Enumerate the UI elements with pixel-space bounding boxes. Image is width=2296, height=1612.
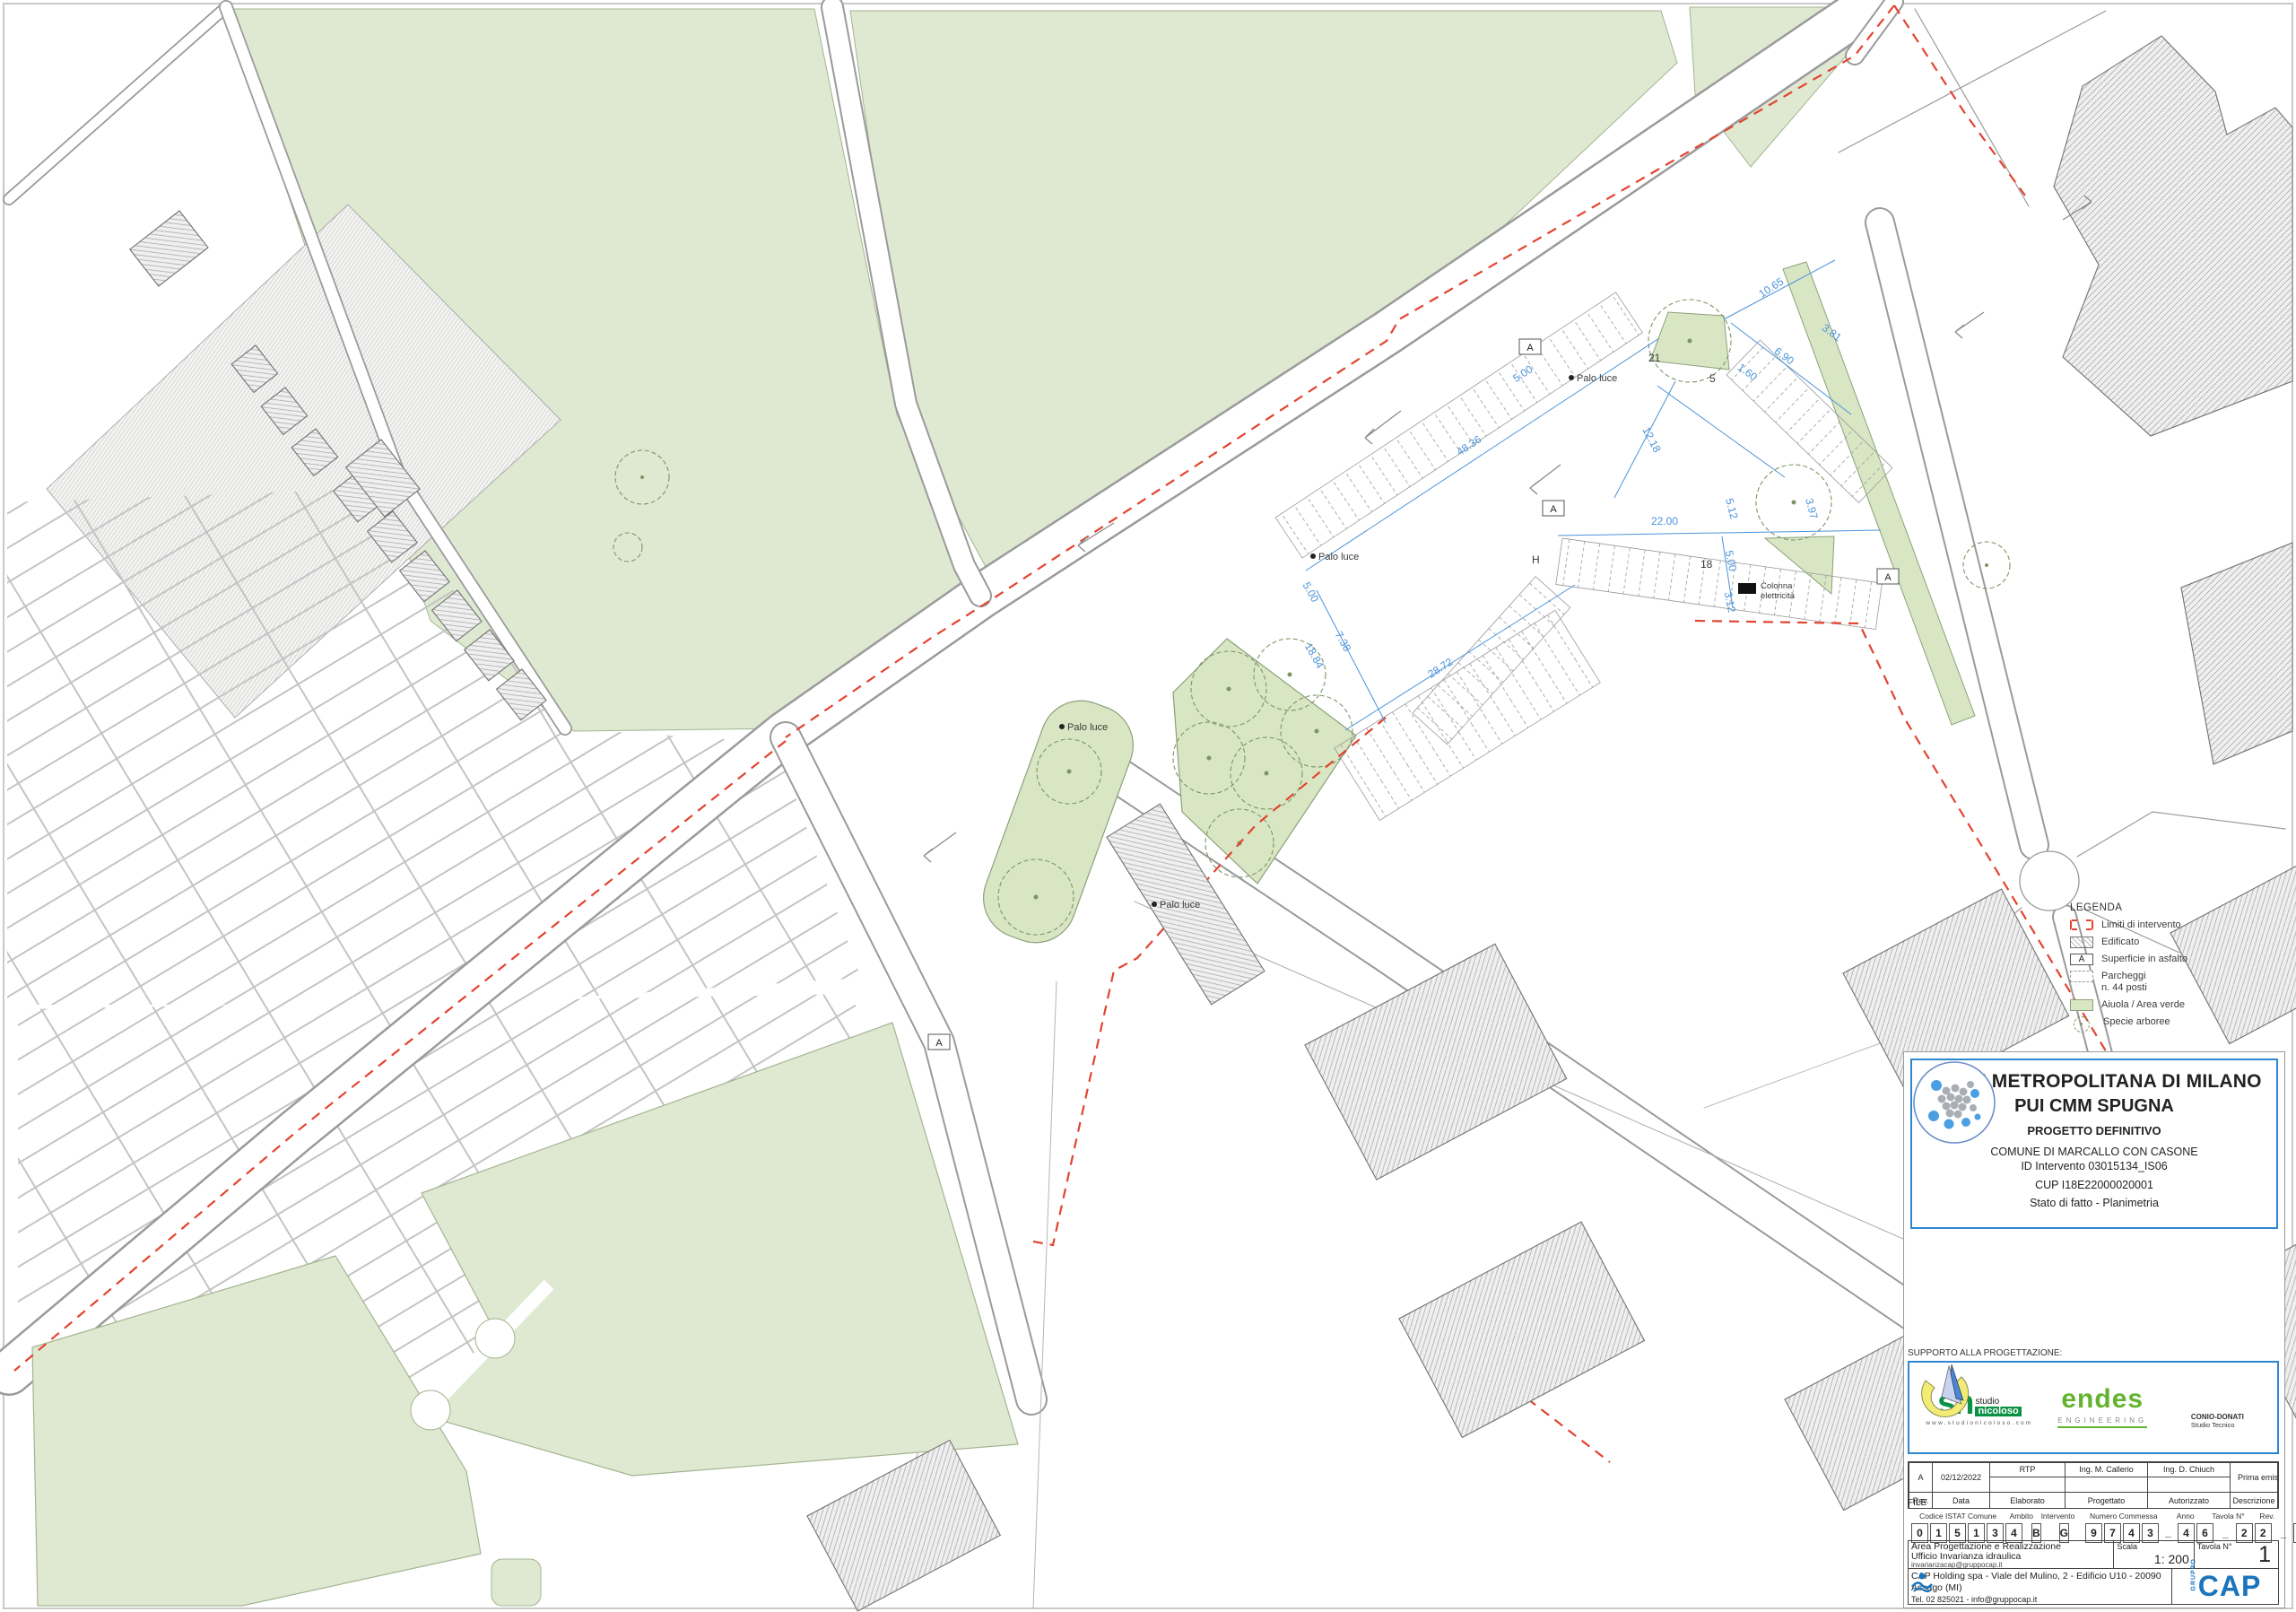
title-block-header: CITTA' METROPOLITANA DI MILANO PUI CMM S… (1910, 1059, 2278, 1229)
conio-donati-logo: CONIO-DONATI Studio Tecnico (2156, 1386, 2277, 1429)
rev-value: A (1909, 1463, 1933, 1493)
support-label: SUPPORTO ALLA PROGETTAZIONE: (1908, 1348, 2062, 1358)
file-label: FILE (1908, 1498, 1926, 1508)
h-label: H (1532, 553, 1540, 566)
scale-value: 1: 200 (2154, 1552, 2189, 1566)
sheet-number-cell: Tavola N° 1 (2195, 1541, 2278, 1568)
info-row: Area Progettazione e Realizzazione Uffic… (1908, 1540, 2279, 1569)
legend-item-edificato: Edificato (2070, 937, 2258, 948)
spugna-logo (1912, 1060, 1996, 1145)
legend: LEGENDA Limiti di intervento Edificato A… (2070, 902, 2258, 1038)
edificato-swatch (2070, 937, 2093, 948)
palo-luce-label: Palo luce (1577, 373, 1617, 384)
colonna-label: Colonna (1761, 581, 1793, 591)
stall-count-18: 18 (1700, 558, 1713, 571)
palo-luce-label: Palo luce (1318, 552, 1359, 562)
legend-item-asfalto: A Superficie in asfalto (2070, 954, 2258, 965)
svg-text:elettricità: elettricità (1761, 591, 1796, 601)
rev-date: 02/12/2022 (1933, 1463, 1990, 1493)
svg-text:A: A (1884, 572, 1892, 583)
company-row: CAP Holding spa - Viale del Mulino, 2 - … (1908, 1569, 2279, 1605)
legend-item-parcheggi: Parcheggi n. 44 posti (2070, 971, 2258, 994)
code-row: Codice ISTAT Comune Ambito Intervento Nu… (1911, 1512, 2279, 1543)
parcheggi-swatch (2070, 971, 2093, 982)
drawing-title: Stato di fatto - Planimetria (1912, 1197, 2276, 1209)
cap-water-icon (1909, 1569, 1935, 1596)
stall-count-5: 5 (1709, 372, 1716, 385)
company-info: CAP Holding spa - Viale del Mulino, 2 - … (1909, 1569, 2171, 1604)
endes-logo: endes ENGINEERING (2049, 1388, 2156, 1428)
svg-text:A: A (935, 1038, 943, 1049)
building-right-mid (2181, 543, 2292, 764)
office-info: Area Progettazione e Realizzazione Uffic… (1909, 1541, 2114, 1568)
revision-table: A 02/12/2022 RTP Ing. M. Callerio Ing. D… (1908, 1461, 2279, 1509)
svg-text:5.00: 5.00 (1300, 579, 1322, 605)
legend-title: LEGENDA (2070, 902, 2258, 913)
verde-swatch (2070, 999, 2093, 1011)
gruppo-cap-logo: GRUPPO CAP (2171, 1569, 2278, 1604)
legend-item-verde: Aiuola / Area verde (2070, 999, 2258, 1011)
svg-text:10.65: 10.65 (1756, 274, 1786, 300)
svg-text:22.00: 22.00 (1651, 515, 1678, 527)
svg-text:5.12: 5.12 (1723, 497, 1741, 520)
svg-text:A: A (1550, 504, 1557, 515)
drawing-sheet: 48.36 28.72 22.00 12.18 10.65 7.38 6.90 … (0, 0, 2296, 1612)
palo-luce-label: Palo luce (1160, 900, 1200, 911)
title-block: CITTA' METROPOLITANA DI MILANO PUI CMM S… (1903, 1051, 2285, 1608)
svg-text:3.97: 3.97 (1803, 497, 1821, 520)
legend-item-arboree: Specie arboree (2070, 1016, 2258, 1033)
limiti-swatch (2070, 919, 2093, 930)
svg-text:12.18: 12.18 (1639, 425, 1664, 455)
consultant-logos: sn studio nicoloso www.studionicoloso.co… (1908, 1361, 2279, 1454)
svg-text:18.84: 18.84 (1302, 640, 1326, 670)
sheet-number-value: 1 (2258, 1542, 2271, 1568)
svg-text:A: A (1526, 343, 1534, 353)
legend-item-limiti: Limiti di intervento (2070, 919, 2258, 931)
building-top-right (2054, 36, 2292, 436)
arboree-swatch (2074, 1016, 2090, 1033)
svg-text:7.38: 7.38 (1333, 629, 1354, 654)
conio-donati-mark (1909, 1363, 1979, 1427)
asfalto-swatch: A (2070, 954, 2093, 965)
stall-count-21: 21 (1648, 352, 1661, 364)
palo-luce-label: Palo luce (1067, 722, 1108, 733)
scale-cell: Scala 1: 200 (2114, 1541, 2194, 1568)
